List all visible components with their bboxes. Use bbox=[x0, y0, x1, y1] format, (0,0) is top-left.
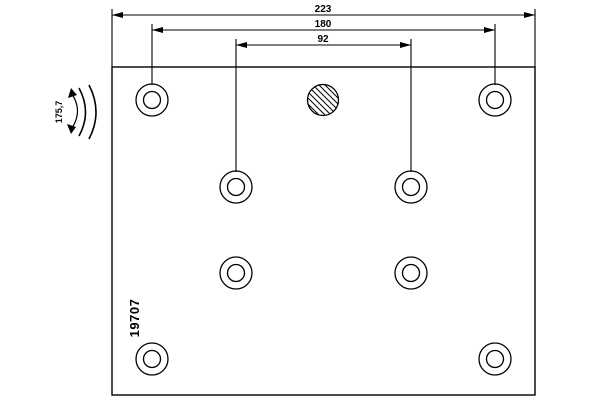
dim-outer-hole-spacing: 180 bbox=[152, 19, 495, 33]
part-number-label: 19707 bbox=[127, 299, 142, 338]
arrowhead-right-icon bbox=[524, 12, 535, 18]
arrowhead-left-icon bbox=[236, 42, 247, 48]
radius-label: 175,7 bbox=[54, 101, 64, 124]
dim-overall-length: 223 bbox=[112, 4, 535, 18]
arrowhead-left-icon bbox=[112, 12, 123, 18]
lining-arc-outer bbox=[89, 85, 96, 139]
curvature-arrowhead-bottom-icon bbox=[67, 124, 76, 134]
dim-inner-hole-spacing: 92 bbox=[236, 34, 411, 48]
dim-overall-length-value: 223 bbox=[315, 4, 332, 15]
curvature-arrow bbox=[72, 94, 78, 128]
dim-inner-hole-spacing-value: 92 bbox=[317, 34, 329, 45]
technical-drawing-canvas: 223 180 92 bbox=[0, 0, 600, 400]
lining-curvature-icon: 175,7 bbox=[54, 85, 96, 139]
plate-outline bbox=[112, 67, 535, 395]
brake-lining-drawing: 223 180 92 bbox=[0, 0, 600, 400]
arrowhead-left-icon bbox=[152, 27, 163, 33]
hatched-hole bbox=[308, 85, 339, 116]
curvature-arrowhead-top-icon bbox=[68, 88, 77, 98]
arrowhead-right-icon bbox=[400, 42, 411, 48]
arrowhead-right-icon bbox=[484, 27, 495, 33]
dim-outer-hole-spacing-value: 180 bbox=[315, 19, 332, 30]
lining-arc-inner bbox=[79, 88, 86, 136]
